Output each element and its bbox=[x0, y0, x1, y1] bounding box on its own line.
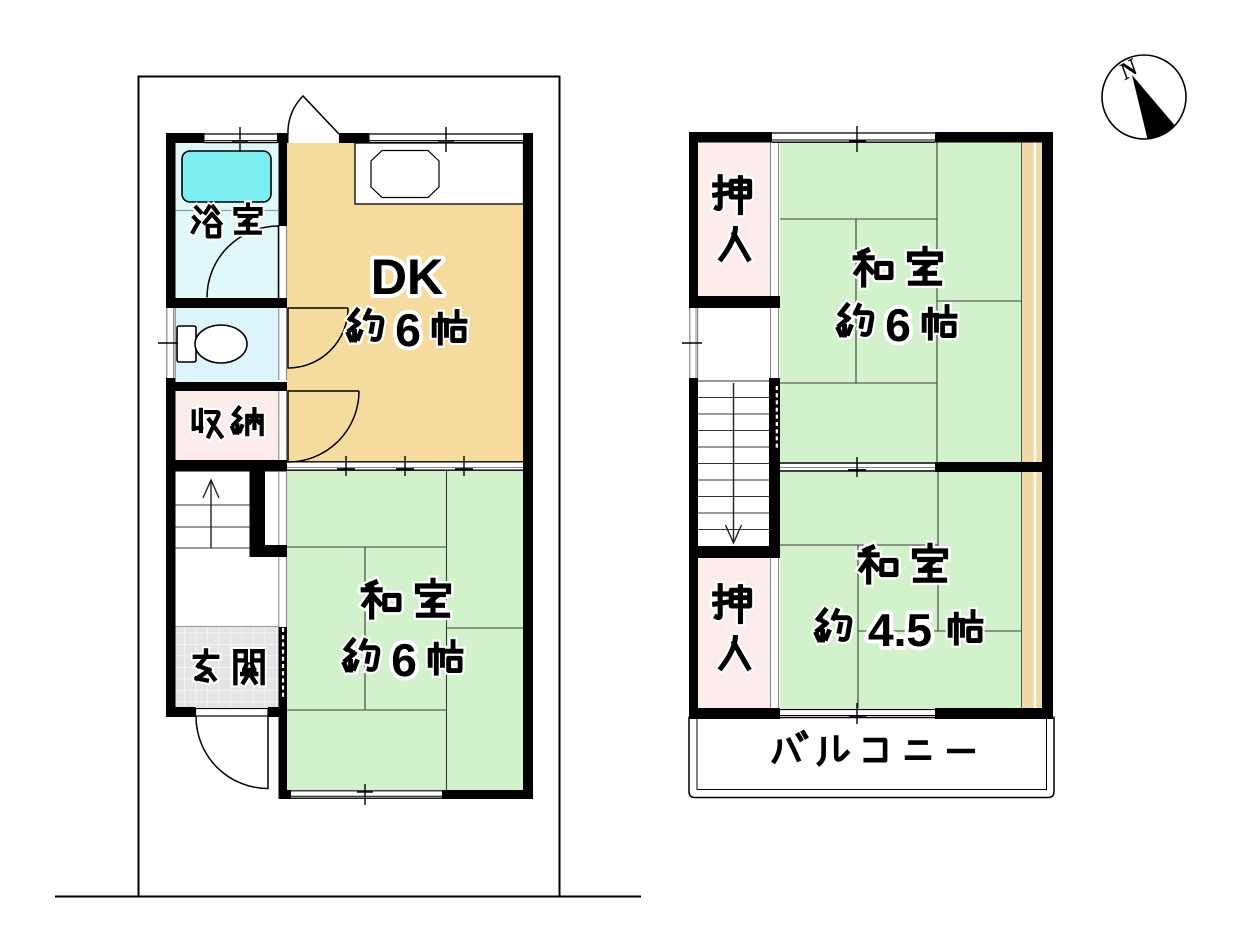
svg-text:6: 6 bbox=[885, 299, 911, 351]
svg-text:DK: DK bbox=[371, 249, 443, 305]
svg-text:6: 6 bbox=[391, 634, 417, 686]
svg-text:4.5: 4.5 bbox=[868, 604, 932, 656]
svg-text:6: 6 bbox=[395, 304, 421, 356]
